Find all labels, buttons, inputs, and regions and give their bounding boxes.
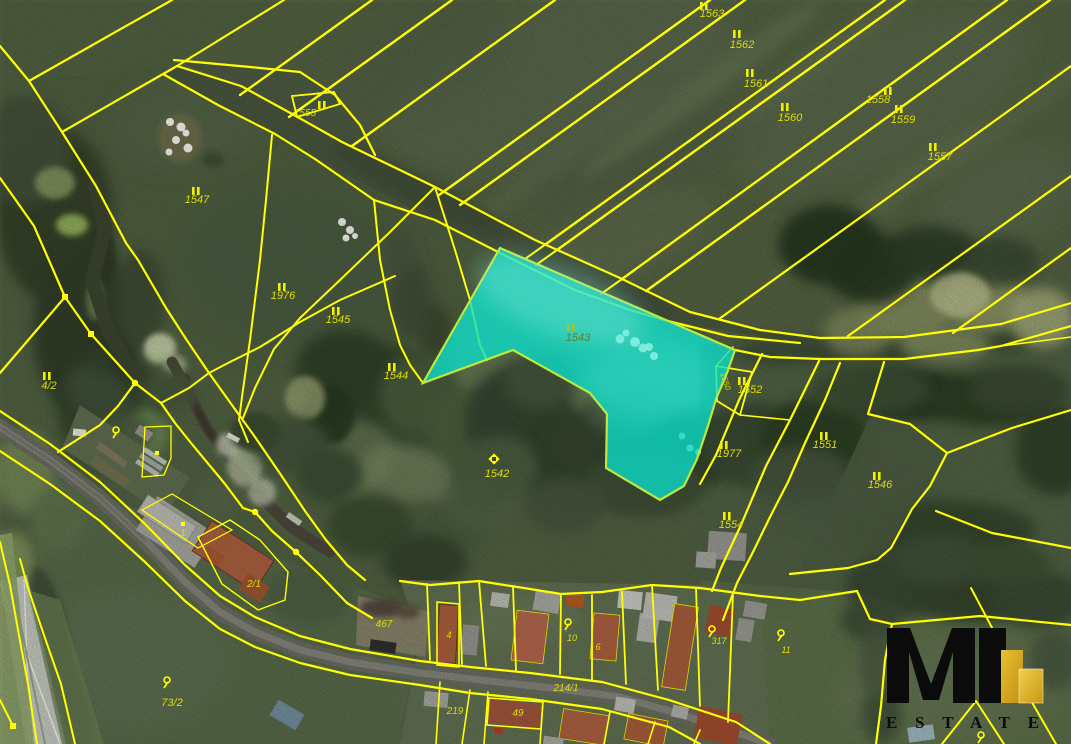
svg-text:1544: 1544 [384,370,408,382]
svg-text:1558: 1558 [866,94,891,106]
svg-text:49: 49 [512,708,524,719]
svg-text:219: 219 [446,706,464,717]
svg-text:1543: 1543 [566,332,591,344]
svg-text:1976: 1976 [271,290,296,302]
svg-text:6: 6 [595,642,600,652]
svg-text:1547: 1547 [185,194,210,206]
svg-text:317: 317 [711,636,727,646]
svg-text:1545: 1545 [326,314,351,326]
svg-text:1977: 1977 [717,448,742,460]
svg-text:1542: 1542 [485,468,509,480]
svg-text:4: 4 [446,630,451,640]
svg-text:1551: 1551 [813,439,837,451]
svg-text:1562: 1562 [730,39,754,51]
svg-text:1563: 1563 [700,8,725,20]
svg-text:1561: 1561 [744,78,768,90]
svg-text:11: 11 [781,645,790,655]
svg-text:1552: 1552 [738,384,762,396]
svg-text:1560: 1560 [778,112,803,124]
svg-text:1554: 1554 [719,519,743,531]
svg-text:1557: 1557 [928,151,953,163]
svg-text:1559: 1559 [891,114,915,126]
svg-text:1546: 1546 [868,479,893,491]
svg-text:2/1: 2/1 [246,579,261,590]
svg-text:467: 467 [376,619,393,630]
svg-text:4/2: 4/2 [41,380,56,392]
svg-text:10: 10 [567,633,577,643]
svg-text:73/2: 73/2 [161,697,182,709]
svg-text:214/1: 214/1 [552,683,578,694]
svg-text:ESTATE: ESTATE [886,713,1057,732]
svg-text:1: 1 [180,528,185,538]
